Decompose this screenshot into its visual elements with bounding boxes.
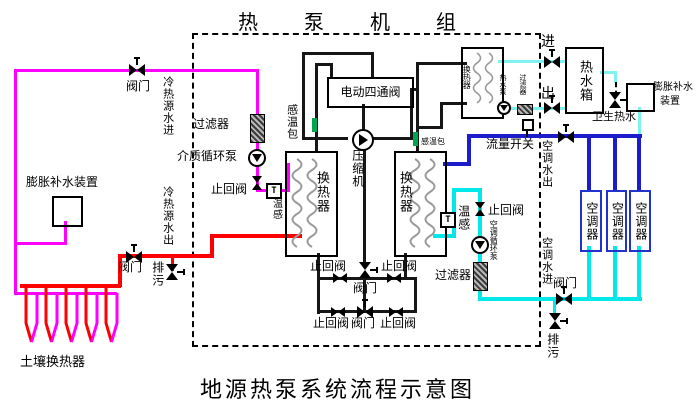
coil-icon <box>471 52 497 110</box>
diagram-title: 热泵机组 <box>238 6 502 35</box>
check-valve-icon <box>252 176 262 190</box>
diagram-canvas: 电动四通阀 换热器 换热器 换热器 热水箱 空调器 空调器 空调器 <box>0 0 700 409</box>
soil-heat-exchanger-label: 土壤换热器 <box>20 355 85 370</box>
valve-label: 阀门 <box>553 277 577 291</box>
source-water-in-label: 冷热源水进 <box>161 76 174 136</box>
pipe-refrigerant <box>302 137 348 140</box>
sensing-bulb-icon <box>312 118 317 132</box>
pipe-refrigerant <box>414 277 417 313</box>
pipe-ac-supply <box>587 134 591 192</box>
drain-valve-icon <box>166 264 178 280</box>
valve-icon <box>556 293 572 305</box>
ac-unit-label: 空调器 <box>610 202 624 241</box>
sanitary-hot-water-label: 卫生热水 <box>592 111 636 124</box>
expansion-device-right-label2: 装置 <box>660 96 680 108</box>
pipe-refrigerant <box>417 126 441 129</box>
tank-in-label: 进 <box>541 33 555 49</box>
pipe-source-supply <box>14 69 17 295</box>
expansion-device-right-box <box>626 83 655 112</box>
filter-icon <box>250 114 265 143</box>
valve-icon <box>558 131 574 143</box>
drain-label: 排污 <box>545 333 559 359</box>
ac-pump-icon <box>471 236 489 254</box>
ac-unit-box: 空调器 <box>580 190 602 252</box>
sanitary-valve-icon <box>609 92 621 108</box>
source-water-out-label: 冷热源水出 <box>161 186 174 246</box>
hot-water-heat-exchanger-label: 换热器 <box>462 65 471 89</box>
pipe-ac-supply <box>637 134 641 192</box>
expansion-device-left-label: 膨胀补水装置 <box>26 176 98 190</box>
pipe-refrigerant <box>416 62 467 65</box>
ac-circulation-pump-label: 空调循环泵 <box>489 220 498 260</box>
ac-unit-box: 空调器 <box>629 190 651 252</box>
pipe-ac-return <box>452 188 482 192</box>
four-way-valve-box: 电动四通阀 <box>327 77 414 108</box>
pipe-refrigerant <box>371 52 374 78</box>
bypass-valve-icon <box>359 262 371 278</box>
valve-icon <box>544 56 560 68</box>
four-way-valve-label: 电动四通阀 <box>340 86 400 100</box>
ground-loop-field <box>12 283 122 345</box>
temp-sensor-icon: T <box>440 212 456 228</box>
ac-water-in-label: 空调水进 <box>540 237 553 285</box>
heat-exchanger-right-label: 换热器 <box>397 171 412 213</box>
pipe-refrigerant <box>440 102 443 129</box>
check-valve-label: 止回阀 <box>380 317 416 331</box>
check-valve-icon <box>387 273 401 283</box>
compressor-label: 压缩机 <box>350 149 364 188</box>
filter-label: 过滤器 <box>193 118 229 132</box>
flow-switch-icon <box>522 119 534 131</box>
check-valve-icon <box>475 202 485 216</box>
pipe-refrigerant <box>302 52 374 55</box>
filter-icon <box>517 104 533 115</box>
valve-label: 阀门 <box>353 282 377 296</box>
temp-sensor-right-label: 温感 <box>456 205 470 231</box>
expansion-device-left-box <box>52 196 83 227</box>
pipe-refrigerant <box>362 104 365 132</box>
valve-icon <box>129 64 145 76</box>
check-valve-label: 止回阀 <box>211 183 247 197</box>
check-valve-label: 止回阀 <box>488 204 524 218</box>
pipe-expansion-stub <box>16 242 67 245</box>
ac-unit-label: 空调器 <box>584 202 598 241</box>
hot-water-tank-box: 热水箱 <box>565 47 604 114</box>
filter-label: 过滤器 <box>435 269 471 283</box>
valve-label: 阀门 <box>118 261 142 275</box>
valve-icon <box>544 102 560 114</box>
hot-water-tank-label: 热水箱 <box>577 60 592 102</box>
sensing-bulb-right-label: 感温包 <box>421 137 445 146</box>
temp-sensor-left-label: 温感 <box>270 198 282 220</box>
hot-water-pump-icon <box>497 101 511 115</box>
check-valve-icon <box>333 273 347 283</box>
sensing-bulb-icon <box>413 132 418 146</box>
compressor-icon <box>352 129 374 151</box>
diagram-caption: 地源热泵系统流程示意图 <box>200 372 475 404</box>
medium-pump-label: 介质循环泵 <box>177 150 237 164</box>
hot-water-filter-label: 过滤器 <box>518 74 526 95</box>
flow-switch-label: 流量开关 <box>486 138 534 152</box>
pipe-ac-return <box>587 246 591 300</box>
tank-out-label: 出 <box>541 85 555 101</box>
ac-unit-label: 空调器 <box>633 202 647 241</box>
drain-valve-icon <box>549 313 561 329</box>
check-valve-label: 止回阀 <box>313 317 349 331</box>
pipe-refrigerant <box>372 137 412 140</box>
ac-unit-box: 空调器 <box>606 190 627 252</box>
sensing-bulb-left-label: 感温包 <box>285 104 298 140</box>
pipe-ac-supply <box>467 135 471 166</box>
filter-icon <box>473 262 488 291</box>
heat-exchanger-left-label: 换热器 <box>314 171 329 213</box>
pipe-ac-supply <box>613 134 617 192</box>
ac-water-out-label: 空调水出 <box>540 140 553 188</box>
expansion-device-right-label1: 膨胀补水 <box>653 82 693 94</box>
hot-water-pump-label: 热水泵 <box>498 74 506 95</box>
pipe-ac-return <box>637 246 641 300</box>
temp-sensor-icon: T <box>266 183 282 199</box>
pipe-refrigerant <box>302 52 305 138</box>
pipe-ac-return <box>613 246 617 300</box>
pipe-refrigerant <box>330 63 333 78</box>
medium-pump-icon <box>248 149 266 167</box>
check-valve-label: 止回阀 <box>381 260 417 274</box>
check-valve-label: 止回阀 <box>310 260 346 274</box>
valve-label: 阀门 <box>126 80 150 94</box>
valve-label: 阀门 <box>351 317 375 331</box>
drain-label: 排污 <box>150 261 164 287</box>
